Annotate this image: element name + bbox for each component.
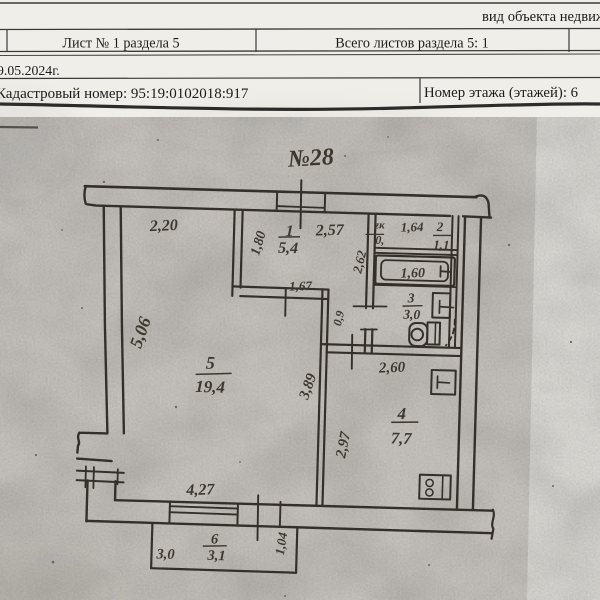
svg-text:Номер этажа (этажей): 6: Номер этажа (этажей): 6: [424, 85, 578, 101]
svg-text:6: 6: [211, 531, 219, 547]
svg-text:Лист № 1 раздела 5: Лист № 1 раздела 5: [62, 36, 179, 52]
svg-text:7,7: 7,7: [391, 428, 413, 448]
svg-text:5: 5: [206, 353, 216, 373]
svg-text:4,27: 4,27: [185, 481, 215, 499]
svg-text:9.05.2024г.: 9.05.2024г.: [0, 63, 60, 78]
svg-text:5,4: 5,4: [278, 240, 298, 258]
svg-text:1,60: 1,60: [400, 266, 425, 282]
svg-text:3,1: 3,1: [206, 548, 226, 565]
svg-text:вид объекта недвиж: вид объекта недвиж: [482, 9, 600, 25]
svg-text:3,0: 3,0: [402, 307, 421, 323]
svg-text:1,67: 1,67: [289, 278, 313, 294]
svg-text:2,20: 2,20: [148, 217, 178, 235]
svg-text:№28: №28: [286, 144, 334, 173]
svg-text:Кадастровый номер: 95:19:01020: Кадастровый номер: 95:19:0102018:917: [0, 86, 249, 102]
svg-text:4: 4: [396, 404, 406, 423]
svg-text:1,64: 1,64: [401, 219, 425, 235]
svg-text:0,: 0,: [375, 233, 384, 247]
svg-text:1,1: 1,1: [433, 237, 450, 252]
svg-text:2,60: 2,60: [378, 360, 406, 377]
svg-text:2,57: 2,57: [315, 222, 345, 240]
svg-text:zк: zк: [374, 219, 386, 231]
svg-text:Всего листов раздела 5: 1: Всего листов раздела 5: 1: [335, 36, 489, 52]
svg-text:3,0: 3,0: [155, 546, 175, 563]
svg-text:19,4: 19,4: [195, 377, 225, 397]
svg-text:2: 2: [436, 219, 444, 234]
svg-text:3: 3: [407, 290, 415, 305]
